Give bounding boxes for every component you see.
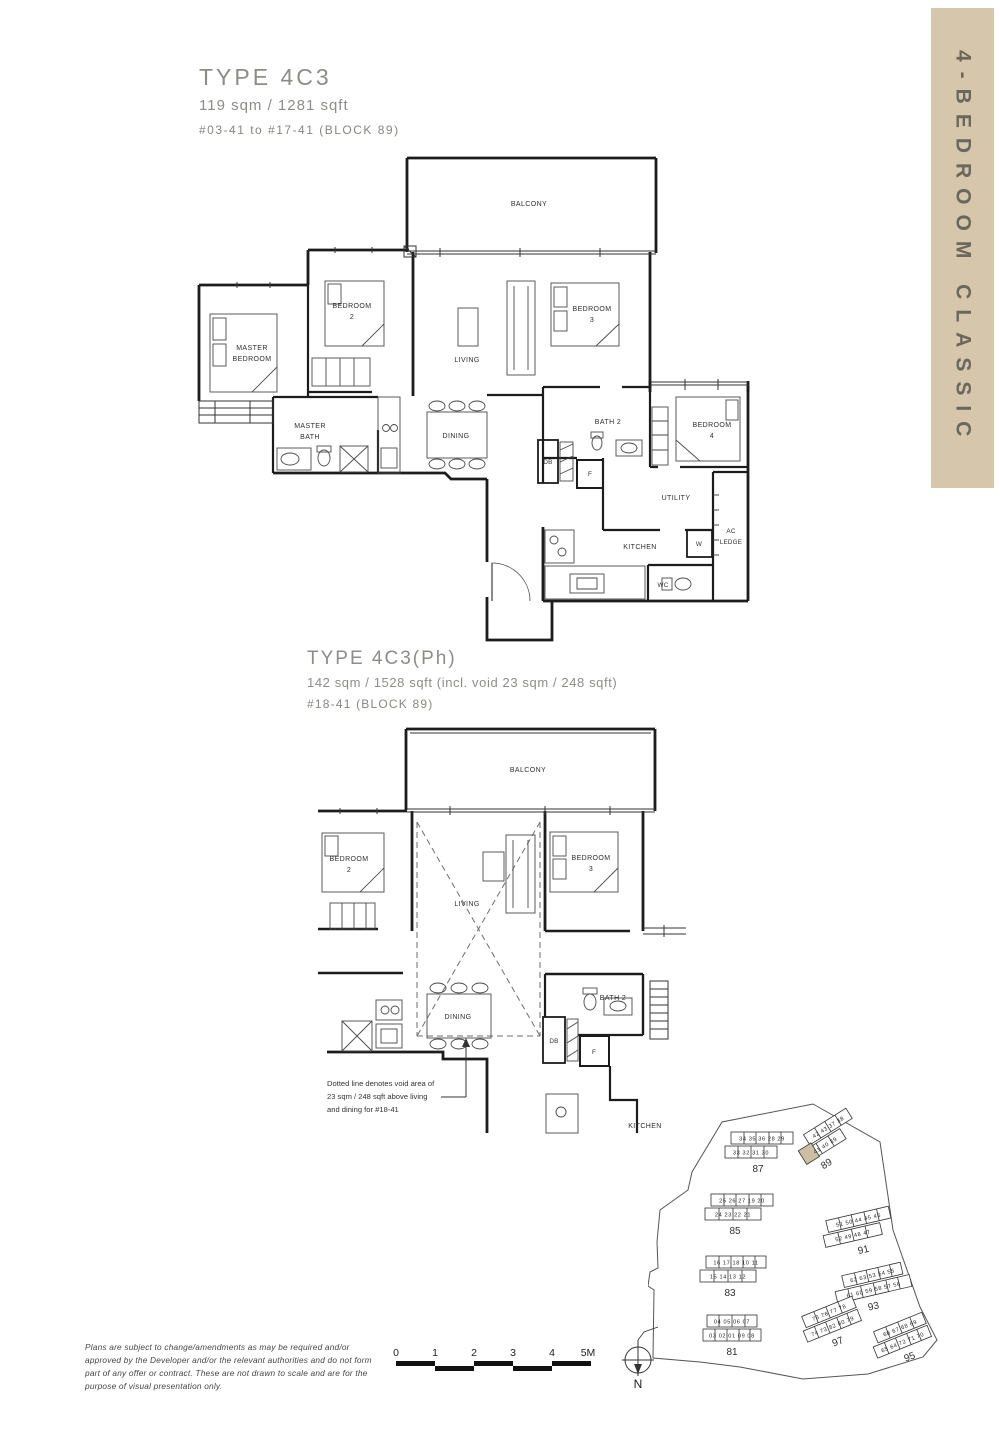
plan1-label-kitchen: KITCHEN: [623, 544, 657, 551]
plan2-title-block: TYPE 4C3(Ph) 142 sqm / 1528 sqft (incl. …: [307, 648, 617, 711]
plan2-label-bath2: BATH 2: [600, 995, 626, 1002]
site-label-91: 91: [857, 1244, 871, 1257]
site-block-89: 42 43 37 38 41 40 39 89: [792, 1108, 868, 1178]
plan1-label-living: LIVING: [454, 357, 479, 364]
floorplan-2: BALCONY BEDROOM 2 LIVING BEDROOM 3 DININ…: [295, 720, 690, 1140]
site-label-97: 97: [831, 1335, 846, 1350]
plan1-label-ac-1: AC: [726, 528, 735, 535]
plan2-label-bedroom3-2: 3: [589, 866, 593, 873]
site-label-89: 89: [819, 1157, 835, 1172]
site-units-83-row2: 15 14 13 12: [710, 1275, 746, 1281]
scale-bar: 0 1 2 3 4 5M: [388, 1344, 603, 1376]
site-units-83-row1: 16 17 18 10 11: [713, 1261, 758, 1267]
plan1-label-w: W: [696, 541, 702, 548]
disclaimer-line4: purpose of visual presentation only.: [85, 1380, 397, 1393]
plan1-walls-thick: [199, 158, 748, 640]
site-label-87: 87: [752, 1164, 764, 1175]
plan2-label-dining: DINING: [445, 1014, 472, 1021]
site-plan: 34 35 36 28 29 33 32 31 30 87 42 43 37 3…: [648, 1088, 948, 1403]
site-block-97: 75 76 77 78 74 73 82 80 79 97: [798, 1296, 868, 1358]
plan1-label-bedroom4-2: 4: [710, 433, 714, 440]
disclaimer-line1: Plans are subject to change/amendments a…: [85, 1341, 397, 1354]
category-strip-label: 4-BEDROOM CLASSIC: [951, 50, 975, 446]
plan1-area: 119 sqm / 1281 sqft: [199, 97, 400, 114]
site-label-95: 95: [903, 1350, 918, 1365]
plan1-title: TYPE 4C3: [199, 64, 400, 91]
plan1-label-f: F: [588, 471, 592, 478]
plan1-label-bedroom4-1: BEDROOM: [693, 422, 732, 429]
site-label-85: 85: [729, 1226, 741, 1237]
scale-bar-labels: 0 1 2 3 4 5M: [393, 1347, 595, 1359]
plan2-label-bedroom3-1: BEDROOM: [572, 855, 611, 862]
floorplan-1: BALCONY MASTER BEDROOM BEDROOM 2 LIVING …: [190, 150, 765, 650]
site-block-81: 04 05 06 07 03 02 01 09 08 81: [703, 1315, 761, 1358]
plan1-label-master-bedroom-2: BEDROOM: [233, 356, 272, 363]
plan2-label-bedroom2-2: 2: [347, 867, 351, 874]
plan2-label-living: LIVING: [454, 901, 479, 908]
plan1-unit-range: #03-41 to #17-41 (BLOCK 89): [199, 123, 400, 137]
site-block-87: 34 35 36 28 29 33 32 31 30 87: [725, 1132, 793, 1175]
plan1-label-bedroom2-1: BEDROOM: [333, 303, 372, 310]
site-units-85-row2: 24 23 22 21: [715, 1213, 751, 1219]
category-strip: 4-BEDROOM CLASSIC: [931, 8, 994, 488]
site-units-87-row2: 33 32 31 30: [733, 1151, 769, 1157]
scale-label-4: 4: [549, 1347, 555, 1359]
scale-bar-segments: [396, 1361, 591, 1371]
scale-label-1: 1: [432, 1347, 438, 1359]
site-block-91: 51 50 44 45 46 52 49 48 47 91: [820, 1206, 898, 1264]
plan2-void-note-line2: 23 sqm / 248 sqft above living: [327, 1092, 427, 1101]
plan1-label-wc: WC: [658, 582, 669, 589]
disclaimer: Plans are subject to change/amendments a…: [85, 1341, 397, 1392]
north-label: N: [634, 1377, 643, 1391]
plan2-void-note-line3: and dining for #18-41: [327, 1105, 399, 1114]
disclaimer-line3: part of any offer or contract. These are…: [85, 1367, 397, 1380]
plan1-label-dining: DINING: [443, 433, 470, 440]
plan2-area: 142 sqm / 1528 sqft (incl. void 23 sqm /…: [307, 675, 617, 690]
plan1-label-balcony: BALCONY: [511, 201, 547, 208]
plan1-label-bedroom3-2: 3: [590, 317, 594, 324]
plan1-title-block: TYPE 4C3 119 sqm / 1281 sqft #03-41 to #…: [199, 64, 400, 137]
plan2-label-balcony: BALCONY: [510, 767, 546, 774]
site-units-87-row1: 34 35 36 28 29: [739, 1137, 785, 1143]
site-label-93: 93: [867, 1300, 881, 1313]
site-units-85-row1: 25 26 27 19 20: [719, 1199, 765, 1205]
north-arrow: N: [612, 1326, 668, 1392]
plan1-label-bedroom2-2: 2: [350, 314, 354, 321]
site-units-81-row2: 03 02 01 09 08: [709, 1334, 755, 1340]
plan1-label-db: DB: [543, 459, 552, 466]
plan2-label-bedroom2-1: BEDROOM: [330, 856, 369, 863]
site-block-85: 25 26 27 19 20 24 23 22 21 85: [705, 1194, 773, 1237]
plan1-label-bedroom3-1: BEDROOM: [573, 306, 612, 313]
plan2-label-f: F: [592, 1049, 596, 1056]
plan1-label-master-bedroom-1: MASTER: [236, 345, 268, 352]
plan2-void-note-line1: Dotted line denotes void area of: [327, 1079, 435, 1088]
site-boundary: [648, 1104, 937, 1379]
site-units-81-row1: 04 05 06 07: [714, 1320, 750, 1326]
site-block-83: 16 17 18 10 11 15 14 13 12 83: [700, 1256, 766, 1299]
scale-label-3: 3: [510, 1347, 516, 1359]
plan2-title: TYPE 4C3(Ph): [307, 648, 617, 670]
scale-label-5m: 5M: [581, 1347, 596, 1359]
plan2-void-dashes: [417, 822, 540, 1036]
disclaimer-line2: approved by the Developer and/or the rel…: [85, 1354, 397, 1367]
plan2-walls-interior: [318, 929, 643, 1133]
plan1-furniture: [210, 281, 740, 601]
brochure-page: TYPE 4C3 119 sqm / 1281 sqft #03-41 to #…: [0, 0, 1000, 1435]
site-label-81: 81: [726, 1347, 738, 1358]
scale-label-2: 2: [471, 1347, 477, 1359]
plan1-label-bath2: BATH 2: [595, 419, 621, 426]
plan1-label-utility: UTILITY: [662, 495, 691, 502]
site-label-83: 83: [724, 1288, 736, 1299]
plan2-unit-range: #18-41 (BLOCK 89): [307, 697, 617, 711]
plan1-label-master-bath-1: MASTER: [294, 423, 326, 430]
plan2-label-db: DB: [549, 1038, 558, 1045]
plan1-label-ac-2: LEDGE: [720, 539, 742, 546]
plan2-room-labels: BALCONY BEDROOM 2 LIVING BEDROOM 3 DININ…: [327, 767, 662, 1130]
plan1-label-master-bath-2: BATH: [300, 434, 320, 441]
